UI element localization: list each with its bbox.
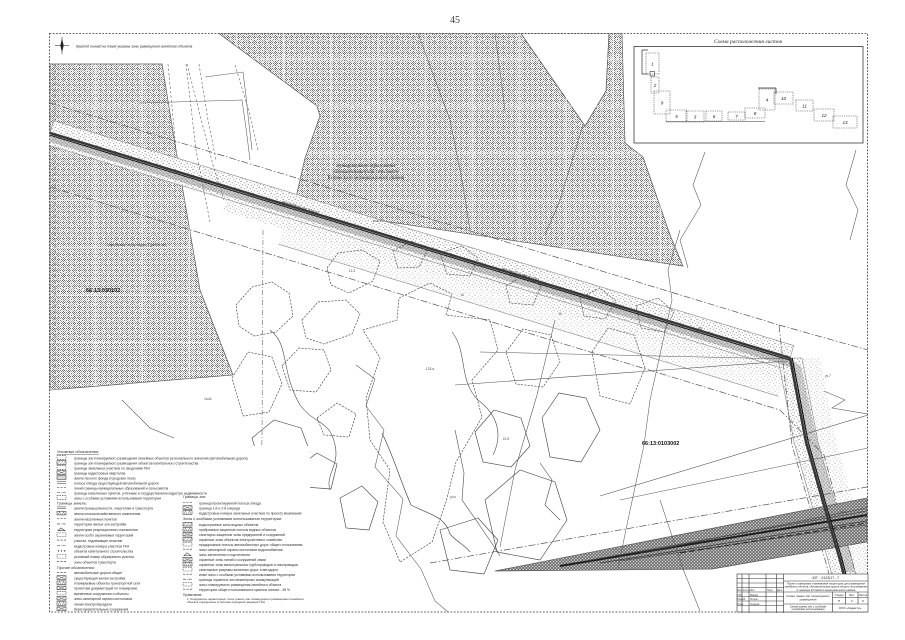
svg-text:ЮГ - 0123/17 - Г: ЮГ - 0123/17 - Г [813, 576, 840, 580]
svg-text:линия границы муниципальных об: линия границы муниципальных образований … [74, 486, 168, 490]
svg-text:существующая жилая застройка: существующая жилая застройка [74, 576, 125, 580]
svg-text:1: 1 [651, 61, 654, 66]
svg-text:5: 5 [675, 114, 678, 119]
svg-text:Листов: Листов [859, 593, 868, 597]
svg-text:земли сельскохозяйственного на: земли сельскохозяйственного назначения [74, 512, 141, 516]
svg-text:временные сооружения и объекты: временные сооружения и объекты [74, 592, 129, 596]
svg-text:6: 6 [713, 114, 716, 119]
svg-text:Петров: Петров [750, 599, 758, 601]
svg-text:границы зон планируемого разме: границы зон планируемого размещения объе… [74, 461, 198, 465]
svg-text:граница 1-й и 2-й очереди: граница 1-й и 2-й очереди [199, 506, 240, 510]
svg-text:территории жилых зон застройки: территории жилых зон застройки [74, 523, 126, 527]
svg-text:15: 15 [558, 312, 562, 316]
svg-text:Разраб: Разраб [738, 599, 746, 601]
svg-text:Стадия: Стадия [835, 593, 844, 597]
svg-text:охранные зоны объектов электро: охранные зоны объектов электросетевого х… [199, 538, 282, 542]
svg-text:45: 45 [450, 15, 460, 26]
svg-text:Границы земель:: Границы земель: [57, 502, 87, 506]
svg-text:кадастровые номера участков ГК: кадастровые номера участков ГКН [74, 544, 130, 548]
svg-text:в границах Кстовского муниципа: в границах Кстовского муниципального рай… [797, 588, 856, 592]
svg-text:автомобильные дороги общие: автомобильные дороги общие [74, 571, 122, 575]
svg-text:уч.9: уч.9 [840, 510, 846, 514]
svg-text:земли населенных пунктов: земли населенных пунктов [74, 517, 117, 521]
svg-text:охранные зоны магистральных тр: охранные зоны магистральных трубопроводо… [199, 563, 298, 567]
svg-text:8: 8 [754, 111, 757, 116]
svg-text:7: 7 [735, 114, 738, 119]
svg-text:зоны санитарной охраны источни: зоны санитарной охраны источников [74, 597, 132, 601]
svg-text:уч.7: уч.7 [825, 374, 831, 378]
svg-text:условный номер образуемого уча: условный номер образуемого участка [74, 555, 134, 559]
svg-text:зоны планируемого размещения л: зоны планируемого размещения линейного о… [199, 583, 281, 587]
svg-text:Лист: Лист [849, 593, 855, 597]
svg-text:границы зон планируемого разме: границы зон планируемого размещения лине… [74, 456, 248, 460]
svg-text:кадастровые номера земельных у: кадастровые номера земельных участков по… [199, 511, 302, 515]
svg-text:объекты капитального строитель: объекты капитального строительства [74, 550, 133, 554]
svg-text:ООО «Кадастр»: ООО «Кадастр» [839, 606, 862, 610]
svg-text:Иванов: Иванов [750, 595, 759, 597]
svg-text:Прочие обозначения:: Прочие обозначения: [57, 566, 95, 570]
svg-text:планируемые объекты транспортн: планируемые объекты транспортной сети [74, 582, 140, 586]
svg-text:Кстовского муниципального райо: Кстовского муниципального района [327, 175, 405, 181]
svg-text:участки, подлежащие изъятию: участки, подлежащие изъятию [74, 539, 123, 543]
svg-text:9: 9 [661, 100, 664, 105]
svg-text:в.кв.13: в.кв.13 [373, 219, 383, 223]
svg-text:земли лесного фонда (городские: земли лесного фонда (городские леса) [74, 476, 136, 480]
svg-text:границы земельных участков по: границы земельных участков по сведениям … [74, 466, 151, 470]
svg-text:границы охранных зон инженерны: границы охранных зон инженерных коммуник… [199, 578, 279, 582]
svg-text:берегоукрепительные сооружения: берегоукрепительные сооружения [74, 608, 128, 612]
svg-text:санитарные разрывы железных до: санитарные разрывы железных дорог и авто… [199, 568, 279, 572]
svg-text:12: 12 [821, 113, 827, 118]
svg-text:21-б: 21-б [503, 437, 510, 441]
svg-text:Дата: Дата [777, 590, 783, 592]
svg-text:муниципальное образование: муниципальное образование [335, 164, 396, 169]
svg-text:12-3: 12-3 [349, 269, 356, 273]
svg-text:66:13:0103002: 66:13:0103002 [642, 441, 679, 447]
svg-text:санитарно-защитные зоны предпр: санитарно-защитные зоны предприятий и со… [199, 533, 285, 537]
svg-text:Сидоров: Сидоров [750, 604, 760, 606]
svg-text:Зоны с особыми условиями испол: Зоны с особыми условиями использования т… [183, 517, 282, 521]
svg-text:Красной линией на плане указан: Красной линией на плане указаны зоны раз… [76, 45, 192, 49]
svg-text:ГИП: ГИП [738, 595, 743, 597]
svg-text:земли особо охраняемых террито: земли особо охраняемых территорий [74, 534, 133, 538]
svg-text:линии электропередачи: линии электропередачи [74, 602, 112, 606]
svg-text:условиями использования: условиями использования [792, 608, 826, 611]
svg-text:зоны объектов транспорта: зоны объектов транспорта [74, 561, 116, 565]
svg-text:№44: №44 [205, 397, 212, 401]
svg-text:размещения: размещения [800, 598, 817, 602]
svg-text:зоны затопления и подтопления: зоны затопления и подтопления [199, 553, 250, 557]
svg-text:водоохранные зоны водных объек: водоохранные зоны водных объектов [199, 523, 259, 527]
svg-text:земли промышленности, энергети: земли промышленности, энергетики и транс… [74, 507, 153, 511]
svg-text:П: П [838, 599, 840, 603]
svg-text:придорожные полосы автомобильн: придорожные полосы автомобильных дорог о… [199, 543, 302, 547]
svg-text:зоны санитарной охраны источни: зоны санитарной охраны источников водосн… [199, 548, 283, 552]
svg-text:Границы зон:: Границы зон: [183, 495, 206, 499]
svg-text:Пров.: Пров. [738, 604, 744, 606]
svg-text:«Большеельнинский сельсовет»: «Большеельнинский сельсовет» [333, 169, 400, 175]
svg-text:14: 14 [460, 293, 464, 297]
svg-text:3: 3 [694, 114, 697, 119]
svg-text:иные зоны с особыми условиями: иные зоны с особыми условиями использова… [199, 573, 295, 577]
svg-text:граница проектируемой полосы о: граница проектируемой полосы отвода [199, 501, 261, 505]
svg-text:зоны с особыми условиями испол: зоны с особыми условиями использования т… [74, 496, 161, 500]
svg-text:проектная документация по план: проектная документация по планировке [74, 587, 137, 591]
svg-text:территории рекреационного назн: территории рекреационного назначения [74, 528, 138, 532]
svg-text:Условные обозначения:: Условные обозначения: [57, 450, 99, 454]
svg-text:территории общего пользования: территории общего пользования в красных … [199, 588, 290, 592]
svg-text:прибрежные защитные полосы вод: прибрежные защитные полосы водных объект… [199, 528, 276, 532]
svg-text:границы кадастровых кварталов: границы кадастровых кварталов [74, 471, 126, 475]
svg-text:2: 2 [653, 83, 657, 88]
svg-text:4: 4 [766, 97, 769, 102]
svg-text:13: 13 [842, 120, 848, 125]
svg-text:Подп.: Подп. [767, 590, 773, 592]
svg-text:объекта определены в системе к: объекта определены в системе координат в… [187, 600, 265, 604]
svg-text:10: 10 [781, 96, 787, 101]
svg-text:городские леса округ Средн лес: городские леса округ Средн лес [107, 242, 167, 247]
svg-text:66:13:030102: 66:13:030102 [86, 288, 120, 294]
svg-text:Изм: Изм [738, 590, 743, 592]
svg-text:уч-к: уч-к [450, 495, 456, 499]
svg-text:11: 11 [802, 103, 807, 108]
svg-text:охранные зоны линий и сооружен: охранные зоны линий и сооружений связи [199, 558, 266, 562]
svg-text:полоса отвода существующей авт: полоса отвода существующей автомобильной… [74, 481, 159, 485]
svg-text:Схема расположения листов: Схема расположения листов [714, 39, 783, 45]
svg-text:123-а: 123-а [426, 367, 434, 371]
